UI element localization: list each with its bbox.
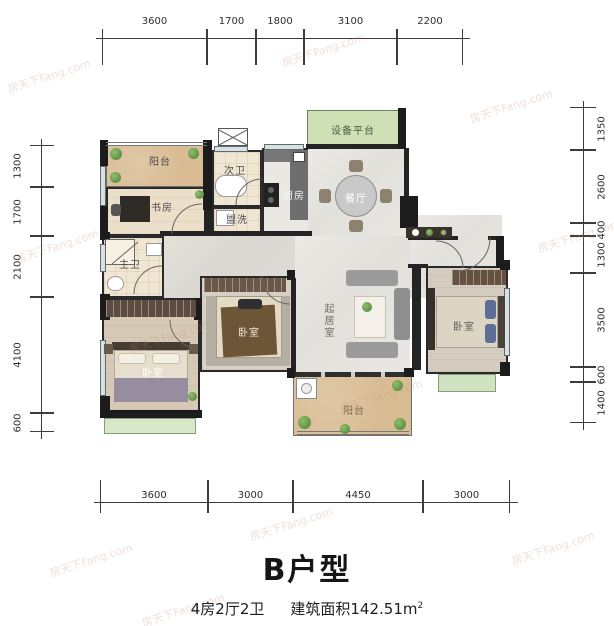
room-label-bedroom-left: 卧室 [142, 364, 164, 379]
dim-segment: 1700 [30, 187, 54, 236]
floorplan-canvas: 阳台 书房 次卫 盥洗 厨房 设备平台 餐厅 主卫 起居室 卧室 卧室 卧室 阳… [0, 0, 614, 626]
plan-title: B户型 [0, 545, 614, 589]
room-label-bedroom-right: 卧室 [453, 318, 475, 333]
door-arc-bedroom-mid [262, 276, 290, 304]
dim-segment: 3600 [100, 480, 208, 513]
plan-area-superscript: 2 [418, 601, 424, 611]
dim-segment: 3500 [570, 273, 596, 367]
plan-area-spec: 建筑面积142.51m [290, 600, 417, 618]
room-label-balcony-top: 阳台 [149, 153, 171, 168]
dim-value: 2200 [417, 16, 442, 27]
dim-segment: 1400 [570, 382, 596, 423]
room-label-master-bath: 主卫 [119, 256, 141, 271]
dim-value: 3600 [141, 490, 166, 501]
room-label-kitchen: 厨房 [283, 187, 305, 202]
dim-segment: 3600 [102, 29, 207, 65]
dim-value: 4100 [13, 342, 24, 367]
dim-value: 4450 [345, 490, 370, 501]
door-arc-bath2 [236, 179, 262, 205]
room-label-living: 起居室 [320, 303, 335, 339]
room-label-equipment: 设备平台 [331, 122, 375, 137]
dim-value: 1300 [13, 153, 24, 178]
dim-segment: 1700 [207, 29, 256, 65]
dim-segment: 3000 [423, 480, 510, 513]
dim-value: 600 [597, 365, 608, 384]
dim-value: 2600 [597, 174, 608, 199]
dim-value: 1350 [597, 116, 608, 141]
dim-segment: 600 [570, 367, 596, 382]
door-arc-bedroom-right [436, 241, 463, 268]
dim-segment: 1300 [30, 145, 54, 187]
plan-layout-spec: 4房2厅2卫 [191, 600, 265, 618]
dim-segment: 600 [30, 413, 54, 432]
dim-value: 1300 [597, 242, 608, 267]
dim-value: 1700 [13, 199, 24, 224]
door-arc-entry [457, 238, 490, 271]
dim-value: 600 [13, 413, 24, 432]
dim-value: 3600 [142, 16, 167, 27]
dim-segment: 2200 [397, 29, 463, 65]
door-arc-study [172, 204, 202, 234]
room-label-bedroom-mid: 卧室 [238, 324, 260, 339]
dim-value: 3000 [238, 490, 263, 501]
dim-value: 3000 [454, 490, 479, 501]
room-label-study: 书房 [151, 199, 173, 214]
plan-spec: 4房2厅2卫建筑面积142.51m2 [0, 598, 614, 619]
dim-value: 1800 [267, 16, 292, 27]
dim-segment: 1350 [570, 107, 596, 150]
dim-value: 1700 [219, 16, 244, 27]
dim-segment: 3000 [208, 480, 293, 513]
dim-segment: 2600 [570, 150, 596, 223]
dim-value: 3500 [597, 307, 608, 332]
dim-value: 1400 [597, 390, 608, 415]
room-label-bath2: 次卫 [224, 162, 246, 177]
vent-shaft-cross [219, 130, 247, 145]
dim-segment: 4100 [30, 297, 54, 413]
room-label-wash: 盥洗 [226, 211, 248, 226]
dim-value: 3100 [338, 16, 363, 27]
room-label-dining: 餐厅 [345, 190, 367, 205]
